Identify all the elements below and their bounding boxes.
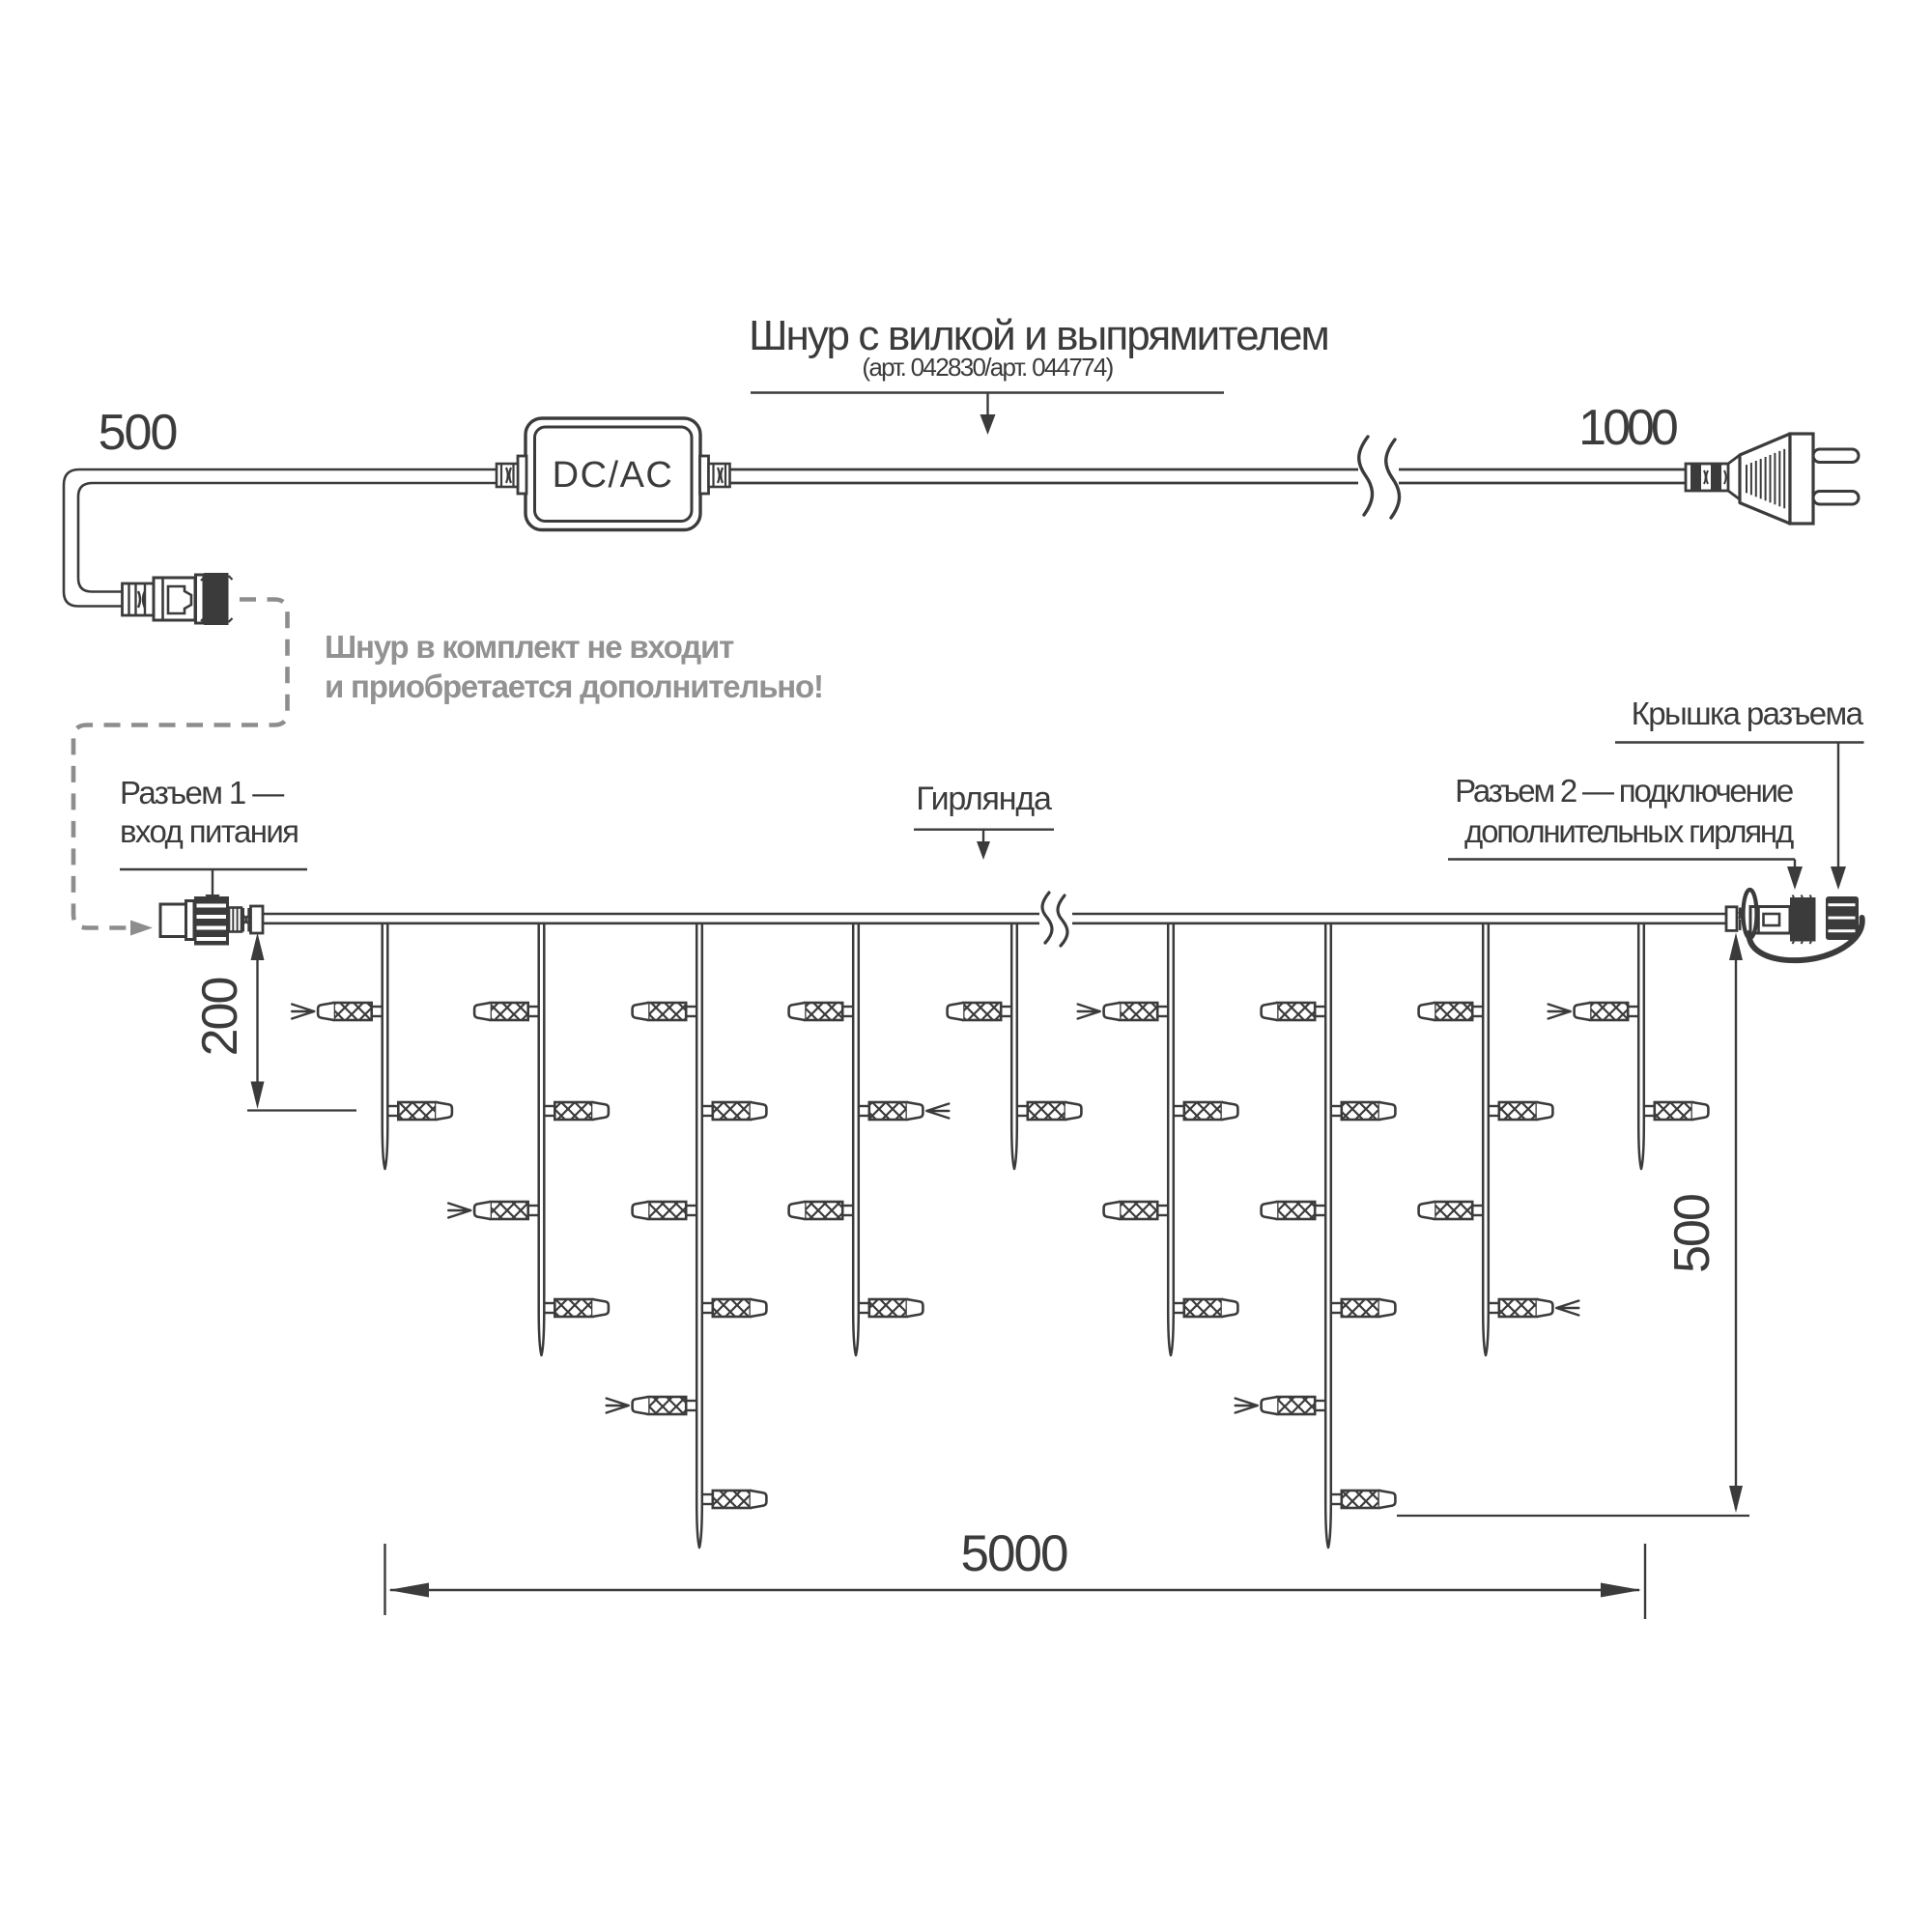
- svg-text:500: 500: [1664, 1195, 1720, 1273]
- svg-text:200: 200: [192, 979, 248, 1057]
- svg-text:500: 500: [99, 405, 177, 461]
- svg-text:вход питания: вход питания: [120, 813, 298, 849]
- svg-text:и приобретается дополнительно!: и приобретается дополнительно!: [325, 668, 823, 704]
- svg-text:5000: 5000: [961, 1525, 1067, 1582]
- svg-text:Крышка разъема: Крышка разъема: [1632, 696, 1864, 731]
- svg-text:1000: 1000: [1578, 400, 1677, 456]
- svg-text:дополнительных гирлянд: дополнительных гирлянд: [1464, 813, 1794, 849]
- svg-text:Разъем 2 — подключение: Разъем 2 — подключение: [1455, 773, 1793, 809]
- svg-text:Разъем 1 —: Разъем 1 —: [120, 775, 284, 810]
- svg-text:Гирлянда: Гирлянда: [916, 781, 1052, 817]
- svg-text:DC/AC: DC/AC: [553, 455, 674, 496]
- svg-text:Шнур в комплект не входит: Шнур в комплект не входит: [325, 629, 734, 665]
- svg-text:(арт. 042830/арт. 044774): (арт. 042830/арт. 044774): [862, 353, 1113, 382]
